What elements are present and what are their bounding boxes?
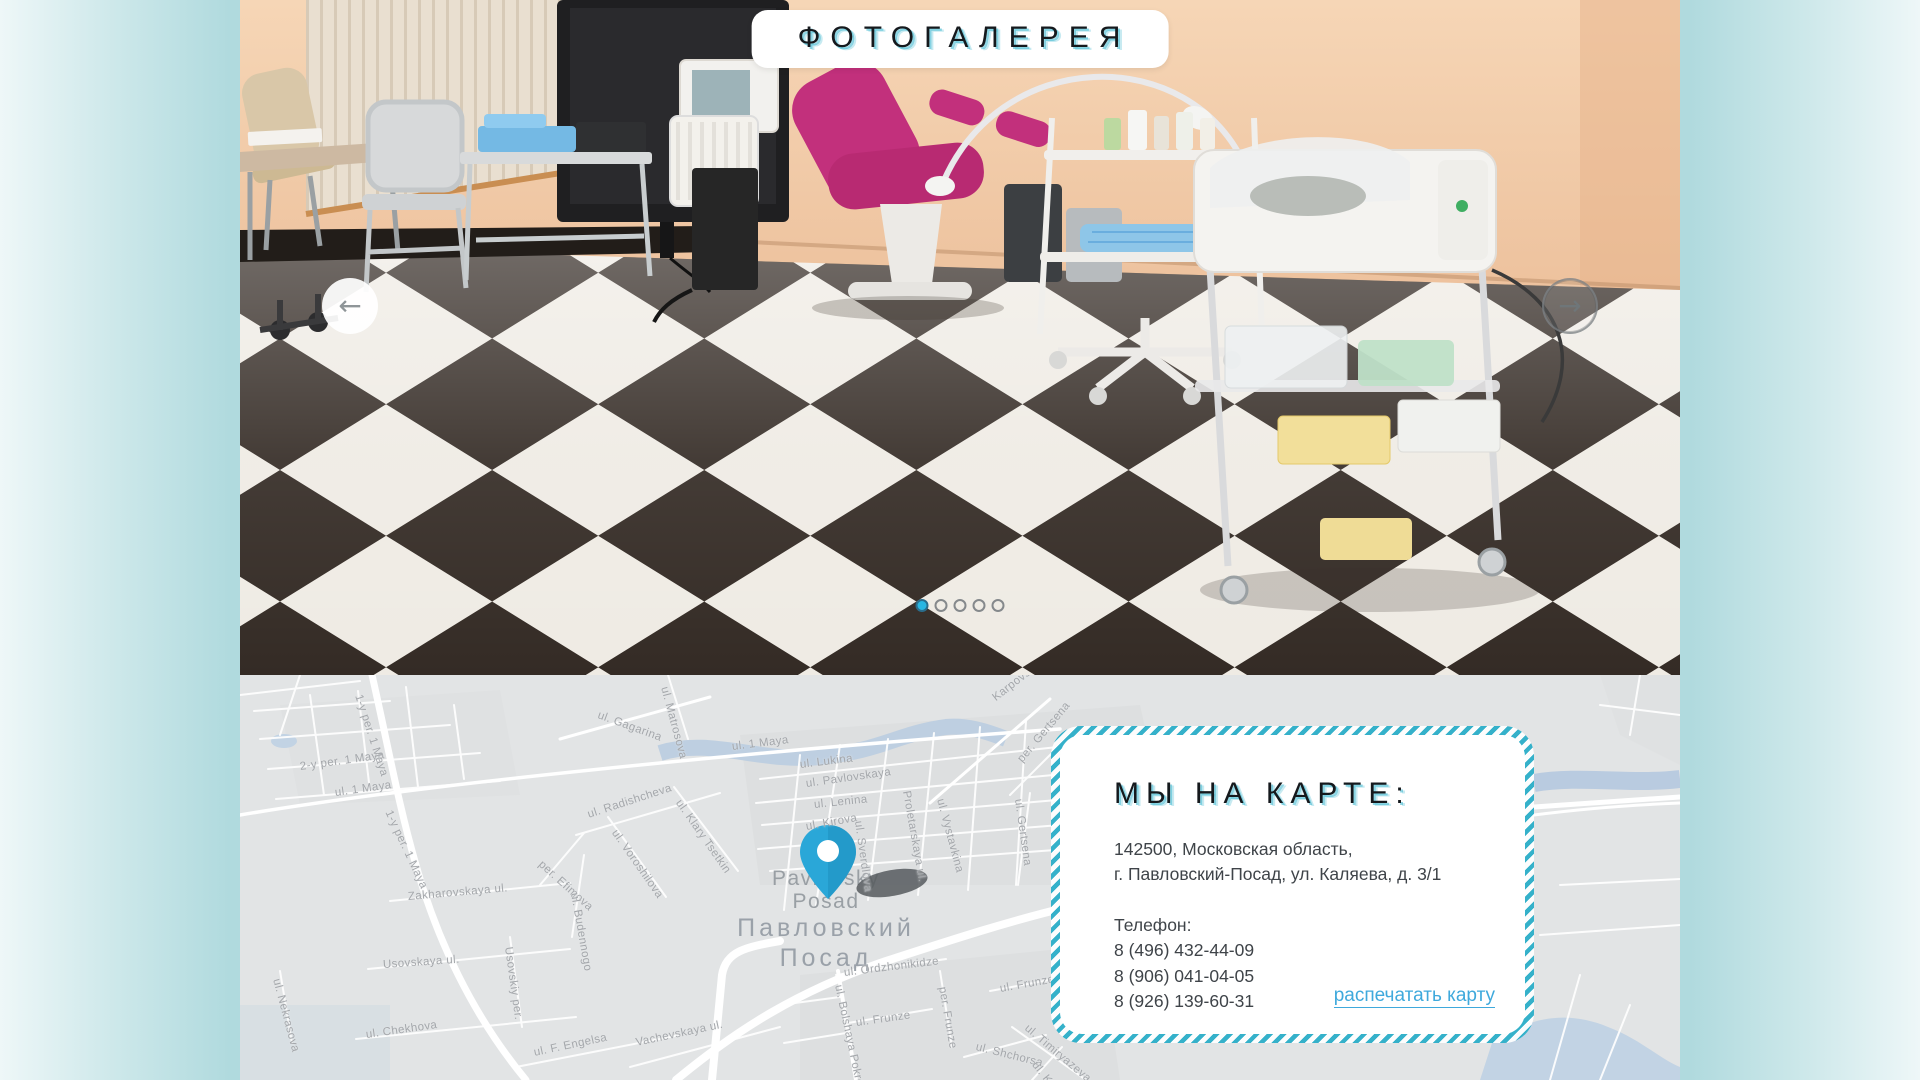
carousel-dot[interactable]	[935, 599, 948, 612]
map-section[interactable]: Pavlovsky Posad Павловский Посад 2-y per…	[240, 675, 1680, 1080]
clinic-room-photo	[240, 0, 1680, 675]
phone-number: 8 (496) 432-44-09	[1114, 938, 1497, 963]
gallery-title: ФОТОГАЛЕРЕЯ	[798, 21, 1131, 54]
address-line: г. Павловский-Посад, ул. Каляева, д. 3/1	[1114, 862, 1497, 887]
address-line: 142500, Московская область,	[1114, 837, 1497, 862]
arrow-left-icon: ←	[338, 292, 361, 320]
carousel-dot[interactable]	[954, 599, 967, 612]
photo-gallery-section: ФОТОГАЛЕРЕЯ ← →	[240, 0, 1680, 675]
page-content: ФОТОГАЛЕРЕЯ ← →	[240, 0, 1680, 1080]
card-title: МЫ НА КАРТЕ:	[1114, 777, 1497, 811]
carousel-dots	[916, 599, 1005, 612]
gallery-title-badge: ФОТОГАЛЕРЕЯ	[752, 10, 1169, 68]
carousel-next-button[interactable]: →	[1542, 278, 1598, 334]
carousel-dot[interactable]	[916, 599, 929, 612]
phone-label: Телефон:	[1114, 913, 1497, 938]
arrow-right-icon: →	[1558, 292, 1581, 320]
print-map-link[interactable]: распечатать карту	[1334, 985, 1495, 1008]
carousel-prev-button[interactable]: ←	[322, 278, 378, 334]
carousel-dot[interactable]	[973, 599, 986, 612]
contact-card: МЫ НА КАРТЕ: 142500, Московская область,…	[1051, 726, 1534, 1043]
carousel-dot[interactable]	[992, 599, 1005, 612]
